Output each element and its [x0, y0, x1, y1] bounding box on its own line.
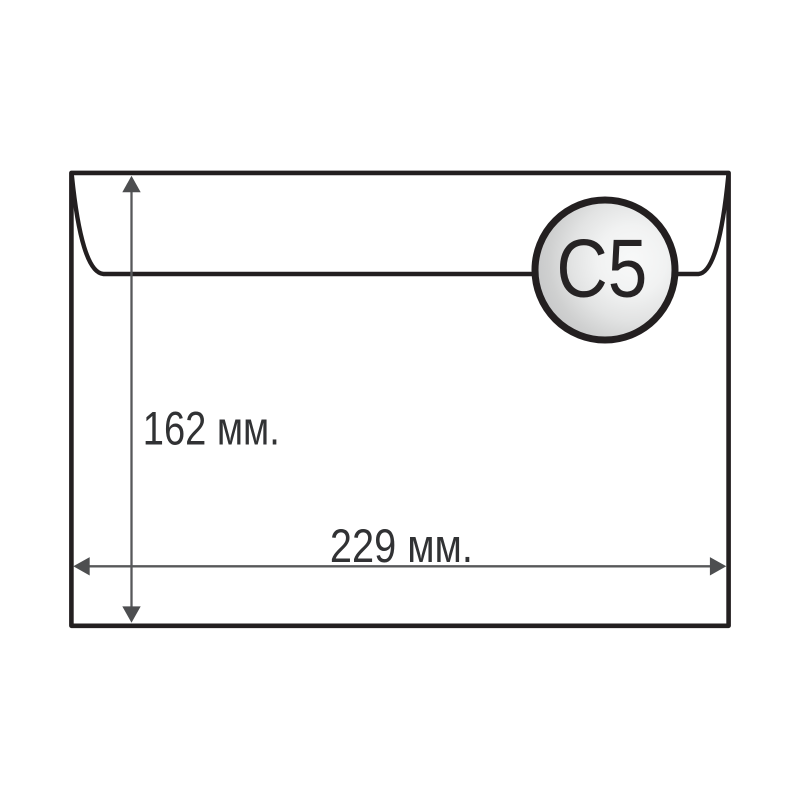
svg-text:C5: C5	[556, 222, 647, 315]
svg-text:162 мм.: 162 мм.	[143, 401, 280, 454]
svg-text:229 мм.: 229 мм.	[330, 519, 473, 572]
